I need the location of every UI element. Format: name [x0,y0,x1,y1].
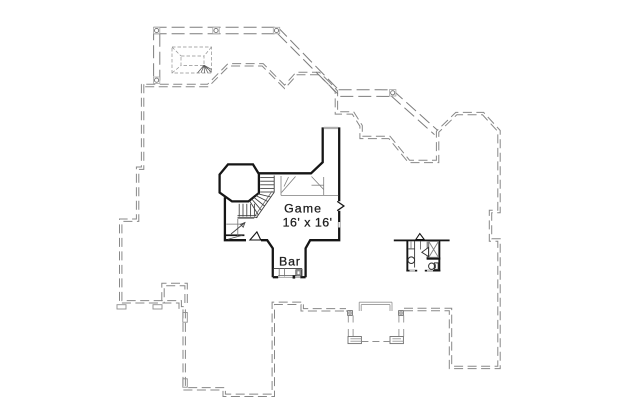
svg-text:16' x 16': 16' x 16' [283,215,333,229]
svg-text:Game: Game [284,201,322,215]
svg-text:Bar: Bar [279,254,301,268]
